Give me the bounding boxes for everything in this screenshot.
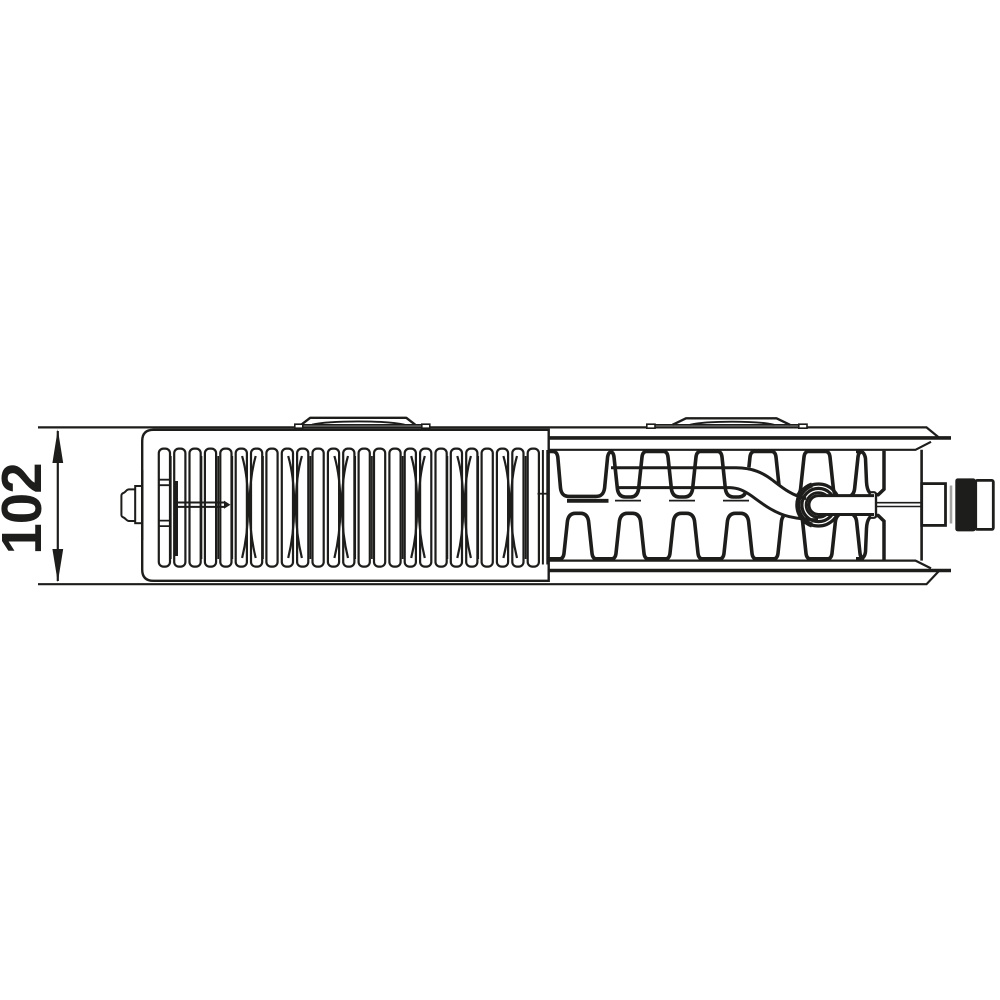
svg-text:102: 102 <box>0 463 53 554</box>
